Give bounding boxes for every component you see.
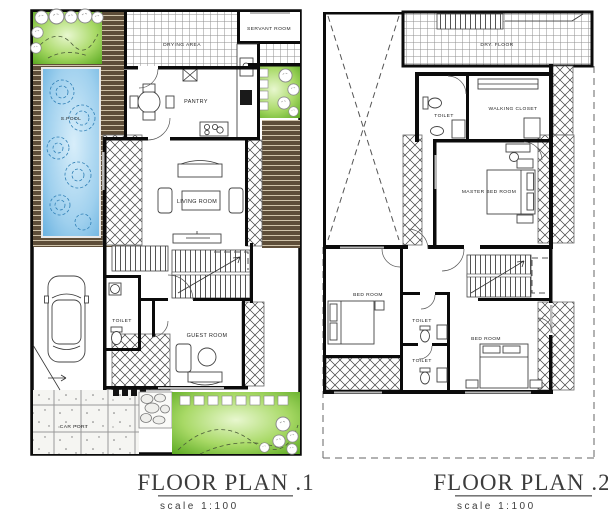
master-bed-room: MASTER BED ROOM — [462, 144, 535, 223]
label-dry-floor: DRY. FLOOR — [480, 42, 513, 48]
label-toilet-mid: TOILET — [412, 318, 431, 324]
bed-room-right: BED ROOM — [466, 336, 542, 388]
label-living-room: LIVING ROOM — [177, 199, 217, 205]
servant-room: SERVANT ROOM — [237, 12, 300, 44]
plan1-group: S.POOL DRYING AREA SERVANT ROOM — [31, 9, 315, 512]
title-block-plan2: FLOOR PLAN .2 scale 1:100 — [433, 470, 608, 512]
floor-plan-sheet: S.POOL DRYING AREA SERVANT ROOM — [0, 0, 608, 516]
label-toilet-bottom: TOILET — [412, 358, 431, 364]
plan2-group: DRY. FLOOR — [323, 12, 608, 512]
label-car-port: CAR PORT — [60, 424, 88, 430]
garden-bottom — [172, 392, 300, 454]
void-area — [323, 12, 403, 247]
stairs-plan2 — [467, 255, 551, 297]
car — [45, 276, 89, 362]
toilet-bottom-plan2: TOILET — [412, 358, 447, 384]
toilet-mid-plan2: TOILET — [412, 318, 447, 342]
label-guest-room: GUEST ROOM — [187, 333, 228, 339]
label-bed-room-right: BED ROOM — [471, 336, 501, 342]
label-toilet-1: TOILET — [112, 318, 131, 324]
label-walking-closet: WALKING CLOSET — [489, 106, 538, 112]
label-drying-area: DRYING AREA — [163, 42, 201, 48]
plan1-title-rule — [158, 495, 293, 497]
plan2-title: FLOOR PLAN .2 — [433, 470, 608, 495]
walking-closet: WALKING CLOSET — [478, 79, 540, 138]
plan2-title-rule — [455, 495, 592, 497]
plan2-scale: scale 1:100 — [457, 501, 536, 512]
label-servant-room: SERVANT ROOM — [247, 26, 291, 32]
bed-room-left: BED ROOM — [328, 292, 384, 344]
swimming-pool: S.POOL — [42, 68, 100, 237]
label-pantry: PANTRY — [184, 99, 208, 105]
label-pool: S.POOL — [61, 116, 82, 122]
title-block-plan1: FLOOR PLAN .1 scale 1:100 — [137, 470, 314, 512]
floor-plan-drawing: S.POOL DRYING AREA SERVANT ROOM — [0, 0, 608, 516]
plan1-title: FLOOR PLAN .1 — [137, 470, 314, 495]
label-master-bed-room: MASTER BED ROOM — [462, 189, 516, 195]
toilet-top-plan2: TOILET — [423, 97, 465, 138]
garden-top-left — [31, 9, 103, 64]
plan1-scale: scale 1:100 — [160, 501, 239, 512]
label-toilet-top: TOILET — [434, 113, 453, 119]
label-bed-room-left: BED ROOM — [353, 292, 383, 298]
dry-floor: DRY. FLOOR — [403, 12, 592, 66]
stone-pond — [139, 392, 172, 428]
